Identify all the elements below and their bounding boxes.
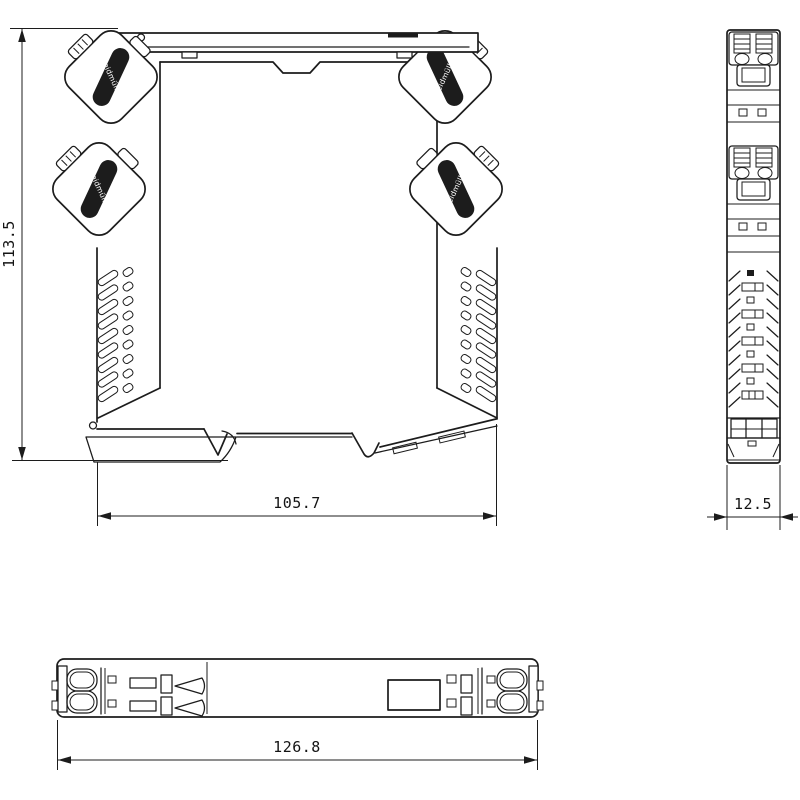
- vent-field-left: [97, 266, 134, 403]
- rail-tab: [397, 52, 412, 58]
- side-view: [727, 30, 780, 463]
- edge-detent: [90, 422, 97, 429]
- vent-field-right: [460, 266, 497, 403]
- foot-slider: [86, 437, 236, 462]
- technical-drawing: Weidmüller Weidmüller: [0, 0, 800, 800]
- dim-front-height-label: 113.5: [0, 220, 18, 268]
- bottom-view: [52, 659, 543, 717]
- dimension-drawing-canvas: Weidmüller Weidmüller: [0, 0, 800, 800]
- dim-bottom-length-label: 126.8: [273, 738, 321, 756]
- dimension-bottom-length: 126.8: [58, 720, 538, 770]
- dim-front-width-label: 105.7: [273, 494, 321, 512]
- side-body-outline: [727, 30, 780, 463]
- dim-side-width-label: 12.5: [734, 495, 772, 513]
- foot-pad: [439, 431, 466, 443]
- panel-top-notch: [160, 62, 437, 73]
- bottom-body-outline: [57, 659, 538, 717]
- dimension-side-width: 12.5: [707, 465, 798, 530]
- front-view: [38, 9, 517, 462]
- din-rail-foot: [86, 419, 497, 462]
- rail-tab: [182, 52, 197, 58]
- rail-marker: [388, 33, 418, 38]
